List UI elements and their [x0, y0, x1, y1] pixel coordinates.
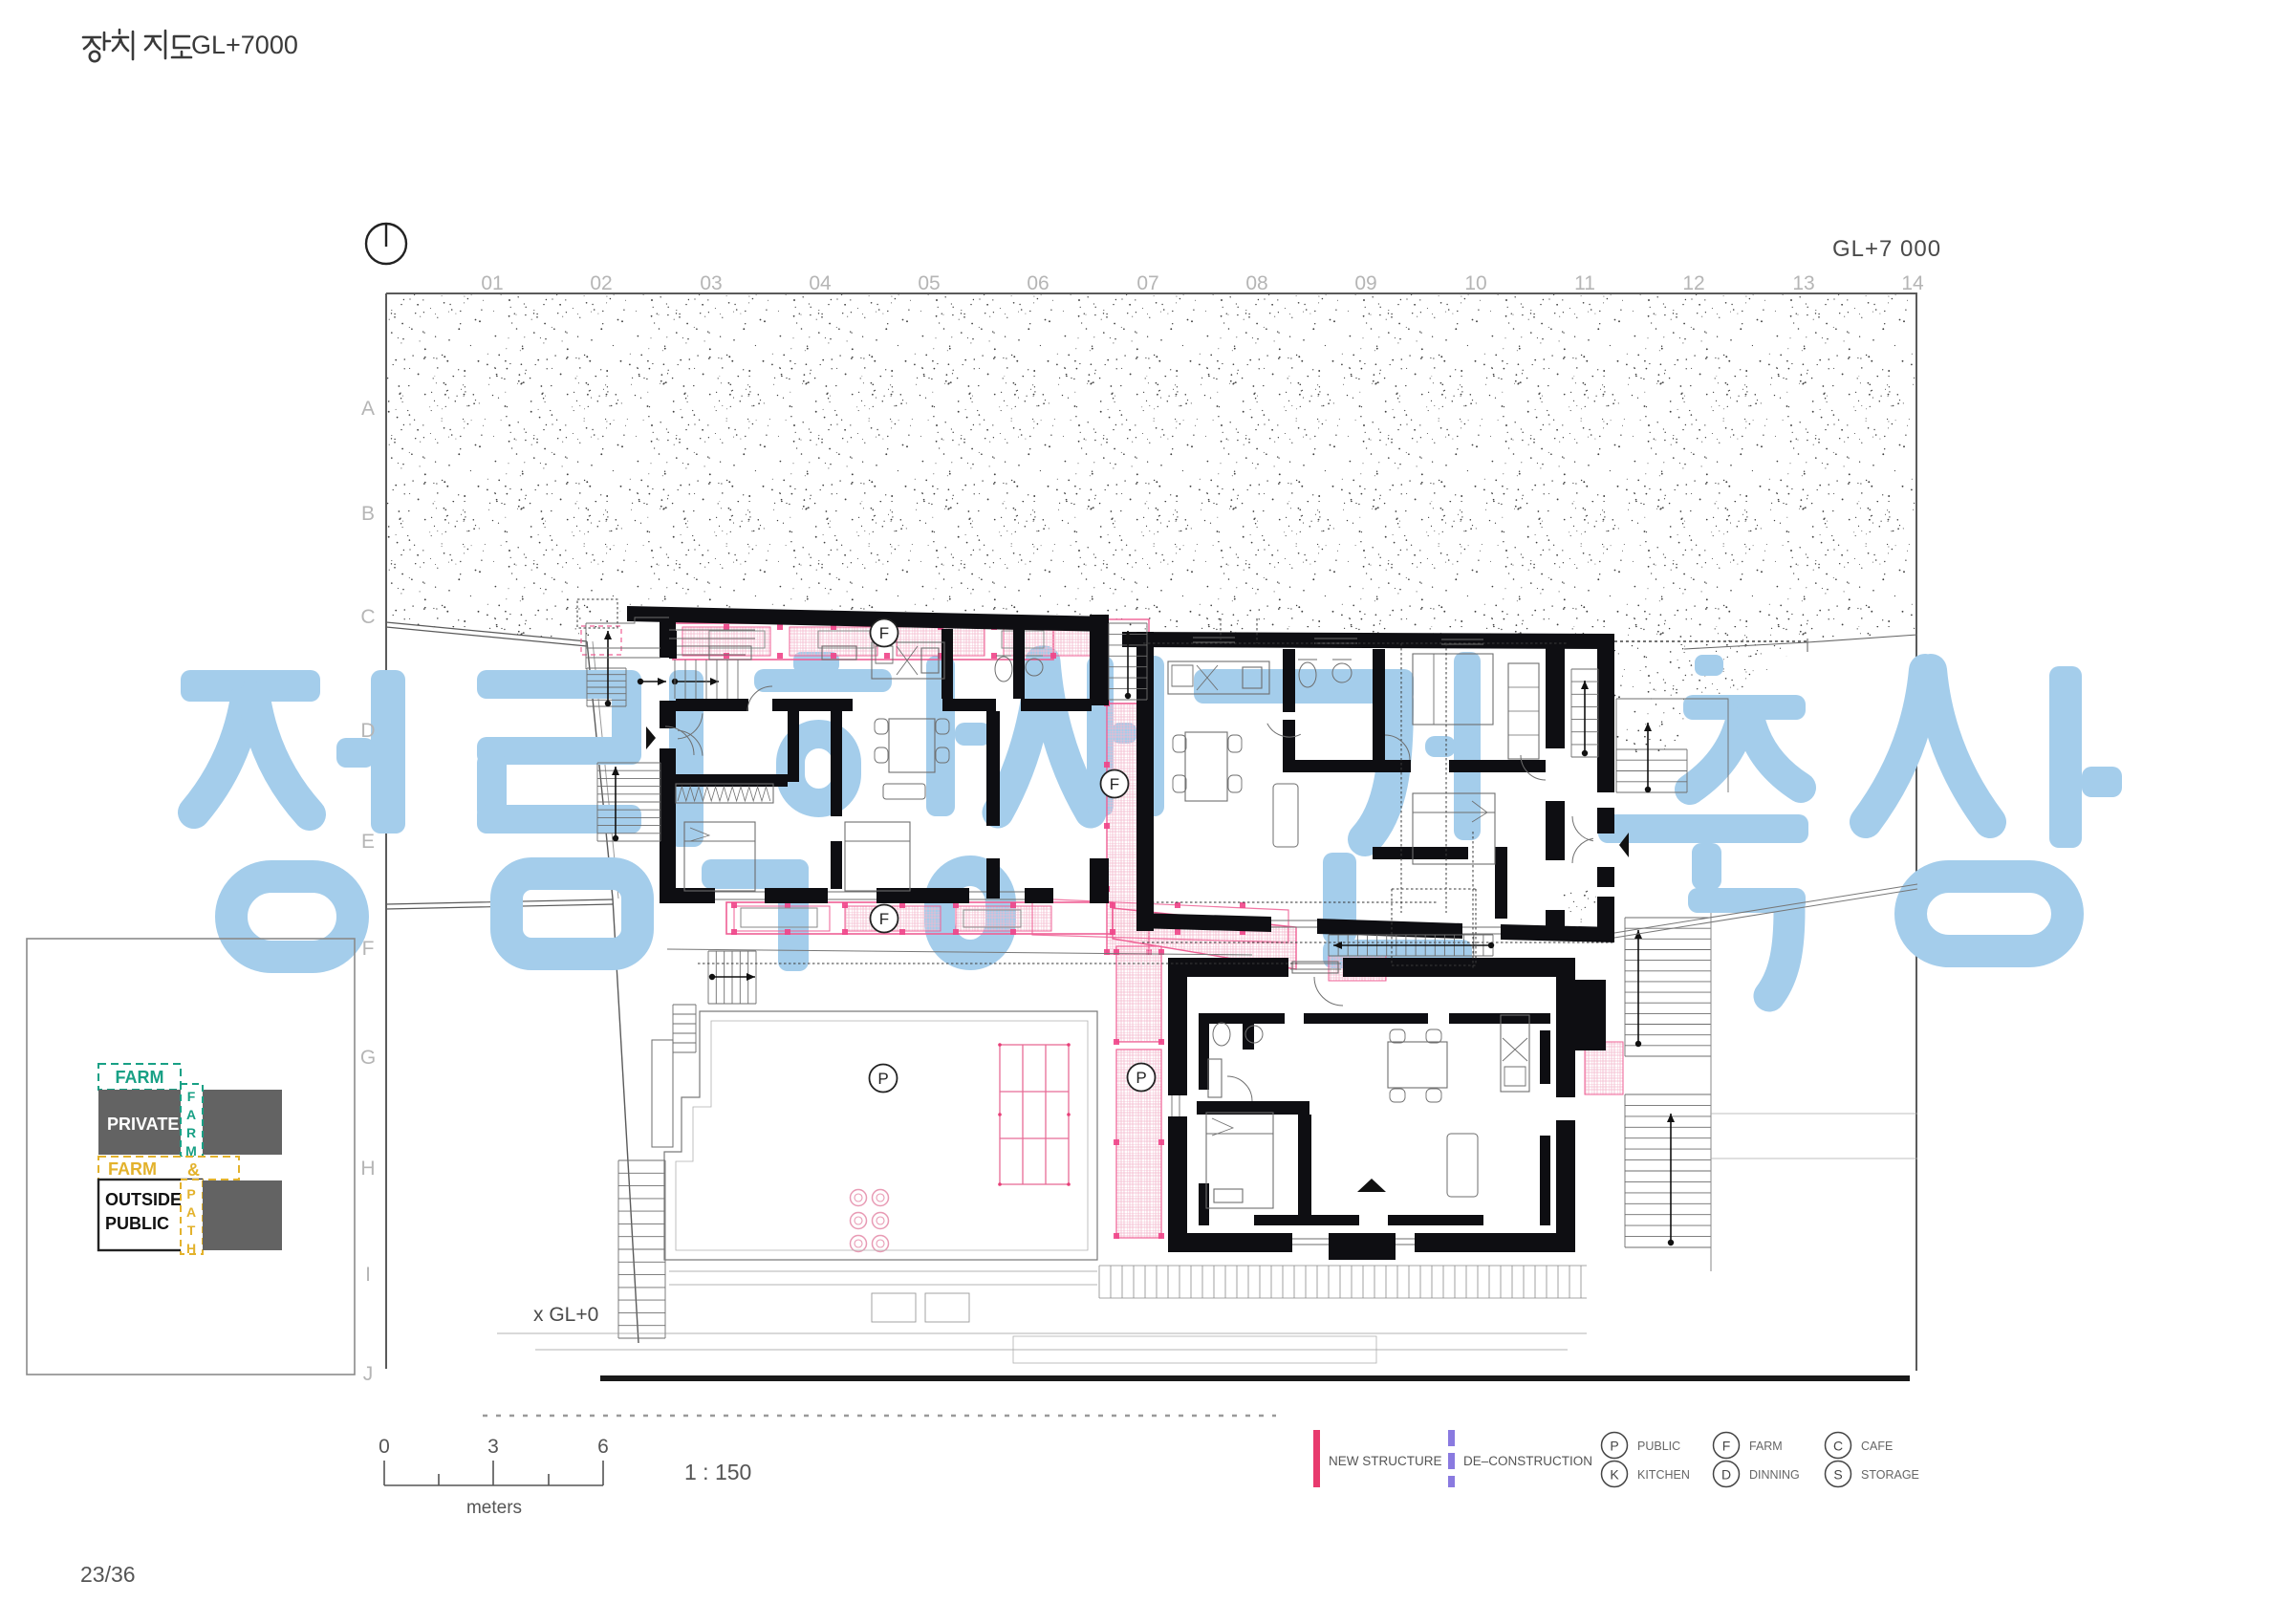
svg-text:3: 3 [487, 1436, 499, 1458]
svg-text:P: P [1136, 1069, 1146, 1087]
svg-text:KITCHEN: KITCHEN [1637, 1468, 1690, 1482]
svg-text:x GL+0: x GL+0 [533, 1304, 598, 1326]
svg-text:T: T [187, 1223, 196, 1238]
svg-text:07: 07 [1136, 272, 1158, 294]
svg-text:R: R [186, 1125, 196, 1140]
svg-text:F: F [1110, 775, 1119, 793]
svg-text:09: 09 [1354, 272, 1376, 294]
svg-text:FARM: FARM [116, 1068, 164, 1087]
svg-text:14: 14 [1901, 272, 1924, 294]
svg-text:STORAGE: STORAGE [1861, 1468, 1919, 1482]
svg-text:05: 05 [918, 272, 940, 294]
svg-text:I: I [365, 1264, 371, 1286]
svg-text:C: C [1833, 1439, 1843, 1454]
svg-text:F: F [879, 624, 889, 642]
svg-text:GL+7 000: GL+7 000 [1832, 236, 1941, 262]
svg-text:06: 06 [1027, 272, 1049, 294]
svg-text:C: C [360, 606, 375, 628]
svg-text:04: 04 [809, 272, 832, 294]
svg-text:G: G [360, 1047, 376, 1069]
svg-text:P: P [1610, 1439, 1618, 1454]
svg-text:6: 6 [597, 1436, 609, 1458]
svg-text:PRIVATE: PRIVATE [107, 1115, 179, 1134]
svg-text:D: D [360, 720, 375, 742]
svg-text:NEW STRUCTURE: NEW STRUCTURE [1329, 1454, 1442, 1468]
svg-text:10: 10 [1464, 272, 1486, 294]
svg-text:&: & [187, 1160, 200, 1180]
svg-text:P: P [186, 1186, 195, 1202]
svg-text:CAFE: CAFE [1861, 1440, 1893, 1453]
svg-text:B: B [361, 503, 375, 525]
svg-text:E: E [361, 831, 375, 853]
svg-text:0: 0 [379, 1436, 390, 1458]
svg-text:A: A [361, 398, 375, 420]
svg-text:F: F [879, 910, 889, 928]
svg-text:F: F [187, 1089, 196, 1104]
svg-text:13: 13 [1792, 272, 1814, 294]
svg-text:D: D [1721, 1467, 1731, 1483]
svg-text:F: F [1722, 1439, 1731, 1454]
svg-text:DINNING: DINNING [1749, 1468, 1800, 1482]
svg-text:FARM: FARM [1749, 1440, 1783, 1453]
svg-text:F: F [362, 938, 375, 960]
svg-text:K: K [1610, 1467, 1619, 1483]
svg-text:A: A [186, 1204, 196, 1220]
svg-text:02: 02 [590, 272, 612, 294]
svg-text:H: H [186, 1241, 196, 1256]
svg-text:J: J [363, 1363, 374, 1385]
svg-text:OUTSIDE: OUTSIDE [105, 1190, 182, 1209]
svg-text:S: S [1833, 1467, 1842, 1483]
svg-text:DE–CONSTRUCTION: DE–CONSTRUCTION [1463, 1454, 1592, 1468]
svg-text:meters: meters [466, 1498, 522, 1518]
svg-text:23/36: 23/36 [80, 1562, 136, 1587]
svg-text:01: 01 [481, 272, 503, 294]
svg-text:A: A [186, 1107, 196, 1122]
svg-text:H: H [360, 1158, 375, 1180]
svg-text:GL+7000: GL+7000 [191, 31, 298, 59]
svg-text:11: 11 [1574, 272, 1595, 294]
svg-text:03: 03 [700, 272, 722, 294]
svg-text:08: 08 [1245, 272, 1267, 294]
svg-text:PUBLIC: PUBLIC [1637, 1440, 1680, 1453]
svg-text:1 : 150: 1 : 150 [684, 1460, 751, 1484]
svg-text:12: 12 [1682, 272, 1704, 294]
svg-text:FARM: FARM [108, 1159, 157, 1179]
svg-text:P: P [877, 1070, 888, 1088]
svg-text:PUBLIC: PUBLIC [105, 1214, 169, 1233]
